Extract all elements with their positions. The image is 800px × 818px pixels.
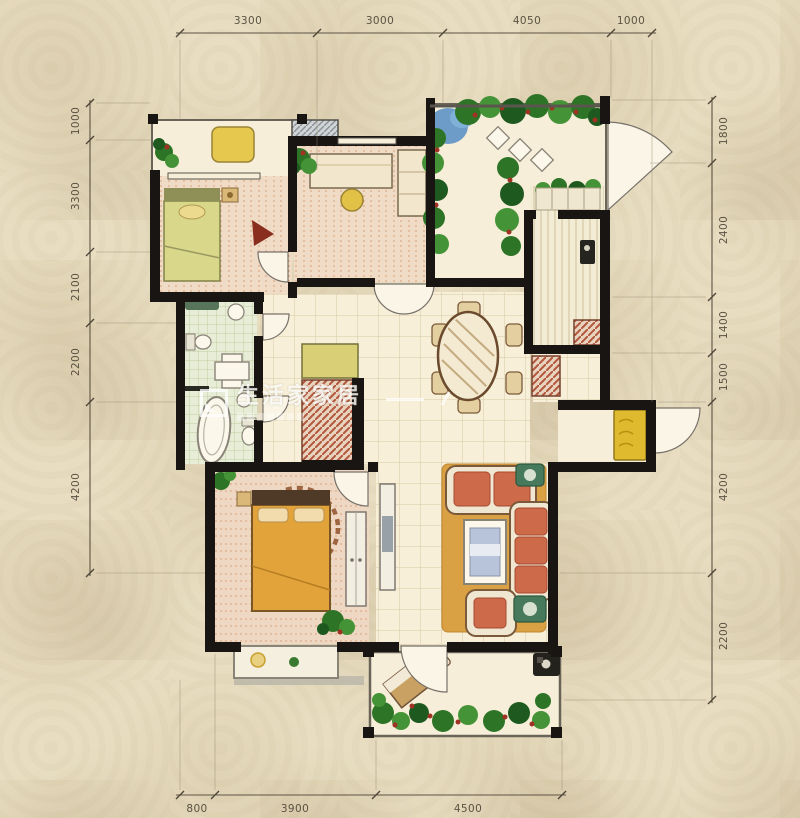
dim-label-right-6: 2200 xyxy=(718,622,730,650)
entry-door-arc xyxy=(655,408,700,453)
toilet xyxy=(242,427,256,445)
dim-label-bottom-3: 4500 xyxy=(454,803,482,815)
watermark-subtext xyxy=(237,413,362,421)
desk xyxy=(310,154,392,188)
tv-cabinet xyxy=(380,484,395,590)
watermark-brand: 生活家家居 xyxy=(237,386,362,408)
watermark-logo-icon xyxy=(200,389,228,417)
floorplan-page: 3300 3000 4050 1000 1000 3300 2100 2200 … xyxy=(0,0,800,818)
dim-label-right-1: 1800 xyxy=(718,117,730,145)
door-mat xyxy=(614,410,646,460)
toilet xyxy=(195,335,211,349)
dim-label-top-4: 1000 xyxy=(617,15,645,27)
bay-window-decor xyxy=(251,653,265,667)
nightstand xyxy=(237,492,251,506)
desk-chair xyxy=(341,189,363,211)
dim-label-top-2: 3000 xyxy=(366,15,394,27)
dim-label-left-5: 4200 xyxy=(70,473,82,501)
dim-label-left-4: 2200 xyxy=(70,348,82,376)
living-room xyxy=(442,464,554,636)
hall-fixture xyxy=(580,240,595,264)
shoe-cabinet xyxy=(574,320,601,345)
bookshelf xyxy=(398,150,426,216)
watermark-dash xyxy=(386,398,424,401)
dim-label-right-4: 1500 xyxy=(718,363,730,391)
dim-label-bottom-1: 800 xyxy=(186,803,207,815)
dim-label-left-1: 1000 xyxy=(70,107,82,135)
dim-label-bottom-2: 3900 xyxy=(281,803,309,815)
sink xyxy=(228,304,244,320)
dim-label-top-1: 3300 xyxy=(234,15,262,27)
dim-label-right-3: 1400 xyxy=(718,311,730,339)
dim-label-right-2: 2400 xyxy=(718,216,730,244)
dim-label-left-3: 2100 xyxy=(70,273,82,301)
watermark: 生活家家居 xyxy=(200,386,447,421)
entry-door-arc xyxy=(608,122,672,210)
dim-label-left-2: 3300 xyxy=(70,182,82,210)
entry-niche xyxy=(614,410,646,460)
kitchen-cabinet xyxy=(532,356,560,396)
dim-label-right-5: 4200 xyxy=(718,473,730,501)
balcony-chair xyxy=(212,127,254,162)
dim-label-top-3: 4050 xyxy=(513,15,541,27)
